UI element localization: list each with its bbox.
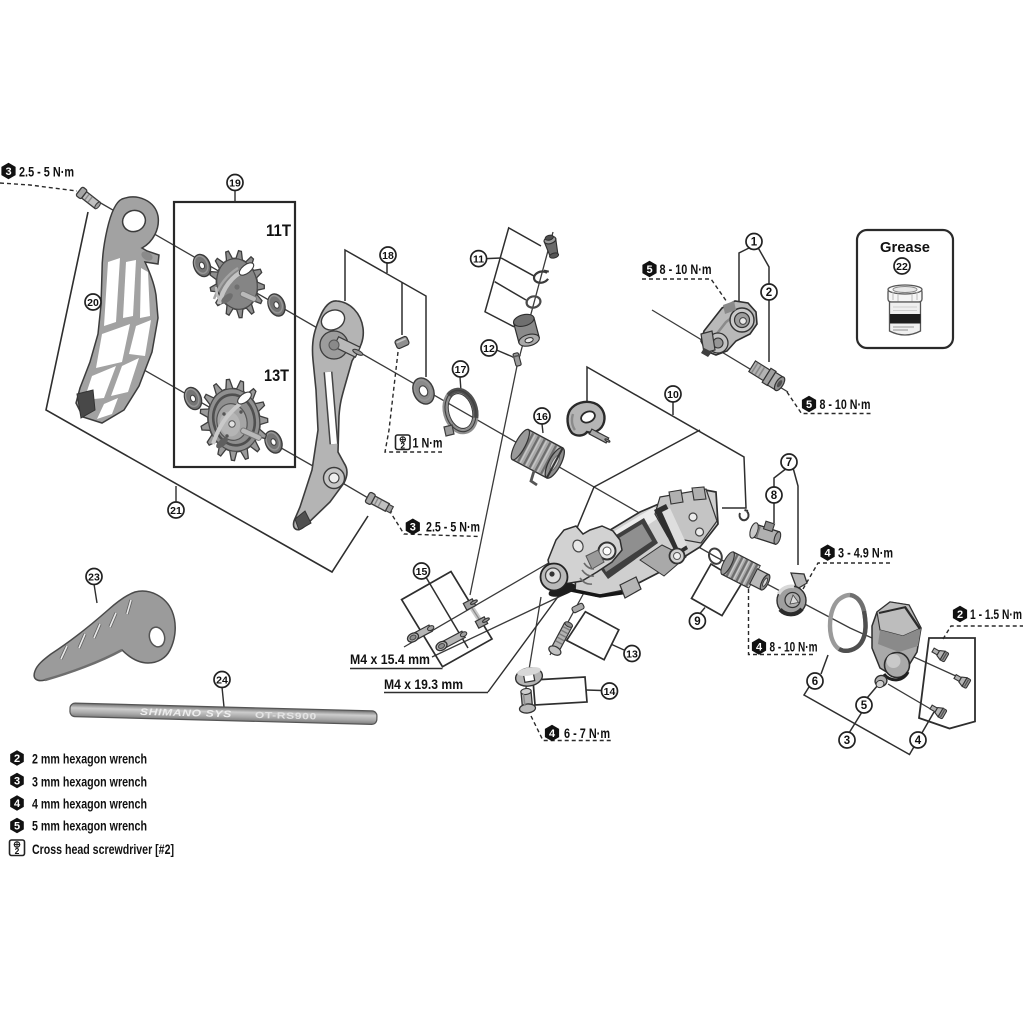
svg-text:4: 4	[549, 728, 556, 740]
svg-text:22: 22	[896, 261, 908, 273]
svg-text:M4 x 19.3 mm: M4 x 19.3 mm	[384, 677, 463, 692]
svg-text:2: 2	[400, 441, 405, 451]
svg-text:Cross head screwdriver [#2]: Cross head screwdriver [#2]	[32, 841, 174, 857]
svg-text:14: 14	[604, 686, 616, 698]
svg-text:13T: 13T	[264, 367, 289, 385]
svg-text:6: 6	[812, 676, 818, 688]
svg-text:2: 2	[957, 609, 963, 621]
svg-text:24: 24	[216, 674, 228, 686]
svg-text:8 - 10 N·m: 8 - 10 N·m	[770, 639, 818, 654]
svg-text:3: 3	[410, 522, 416, 534]
svg-text:18: 18	[382, 250, 394, 262]
svg-text:3: 3	[5, 166, 11, 178]
svg-text:M4 x 15.4 mm: M4 x 15.4 mm	[350, 652, 430, 667]
svg-text:2.5 - 5 N·m: 2.5 - 5 N·m	[426, 520, 480, 535]
svg-text:1 N·m: 1 N·m	[413, 436, 443, 451]
svg-text:4: 4	[915, 735, 922, 747]
svg-text:3: 3	[14, 776, 20, 788]
svg-text:20: 20	[87, 297, 99, 309]
svg-text:12: 12	[483, 343, 495, 355]
svg-text:5 mm hexagon wrench: 5 mm hexagon wrench	[32, 818, 147, 834]
svg-text:3 mm hexagon wrench: 3 mm hexagon wrench	[32, 773, 147, 789]
svg-text:21: 21	[170, 505, 182, 517]
svg-text:2.5 - 5 N·m: 2.5 - 5 N·m	[19, 165, 74, 180]
svg-text:16: 16	[536, 411, 548, 423]
svg-text:8: 8	[771, 490, 778, 502]
svg-text:2: 2	[766, 287, 772, 299]
svg-text:4: 4	[756, 642, 763, 654]
svg-text:9: 9	[694, 616, 700, 628]
svg-text:10: 10	[667, 389, 679, 401]
svg-text:4: 4	[825, 548, 832, 560]
svg-text:3: 3	[844, 735, 850, 747]
svg-text:OT-RS900: OT-RS900	[255, 710, 317, 722]
svg-text:8 - 10 N·m: 8 - 10 N·m	[820, 397, 871, 412]
svg-text:11T: 11T	[266, 222, 291, 240]
svg-text:3 - 4.9 N·m: 3 - 4.9 N·m	[838, 546, 893, 561]
svg-text:1 - 1.5 N·m: 1 - 1.5 N·m	[970, 607, 1022, 622]
svg-text:8 - 10 N·m: 8 - 10 N·m	[660, 262, 712, 277]
svg-text:7: 7	[786, 457, 792, 469]
svg-text:15: 15	[416, 566, 428, 578]
svg-text:2 mm hexagon wrench: 2 mm hexagon wrench	[32, 751, 147, 767]
svg-text:17: 17	[455, 364, 467, 376]
svg-text:6 - 7 N·m: 6 - 7 N·m	[564, 726, 610, 741]
svg-text:13: 13	[626, 648, 638, 660]
svg-text:5: 5	[14, 821, 20, 833]
svg-text:23: 23	[88, 571, 100, 583]
svg-text:2: 2	[14, 753, 20, 765]
svg-text:5: 5	[646, 264, 652, 276]
svg-text:1: 1	[751, 236, 758, 248]
svg-text:19: 19	[229, 177, 241, 189]
svg-text:4 mm hexagon wrench: 4 mm hexagon wrench	[32, 796, 147, 812]
svg-text:11: 11	[473, 253, 484, 265]
svg-text:Grease: Grease	[880, 239, 930, 256]
svg-text:5: 5	[806, 399, 812, 411]
svg-text:2: 2	[15, 846, 20, 856]
svg-text:4: 4	[14, 798, 21, 810]
svg-text:5: 5	[861, 700, 868, 712]
